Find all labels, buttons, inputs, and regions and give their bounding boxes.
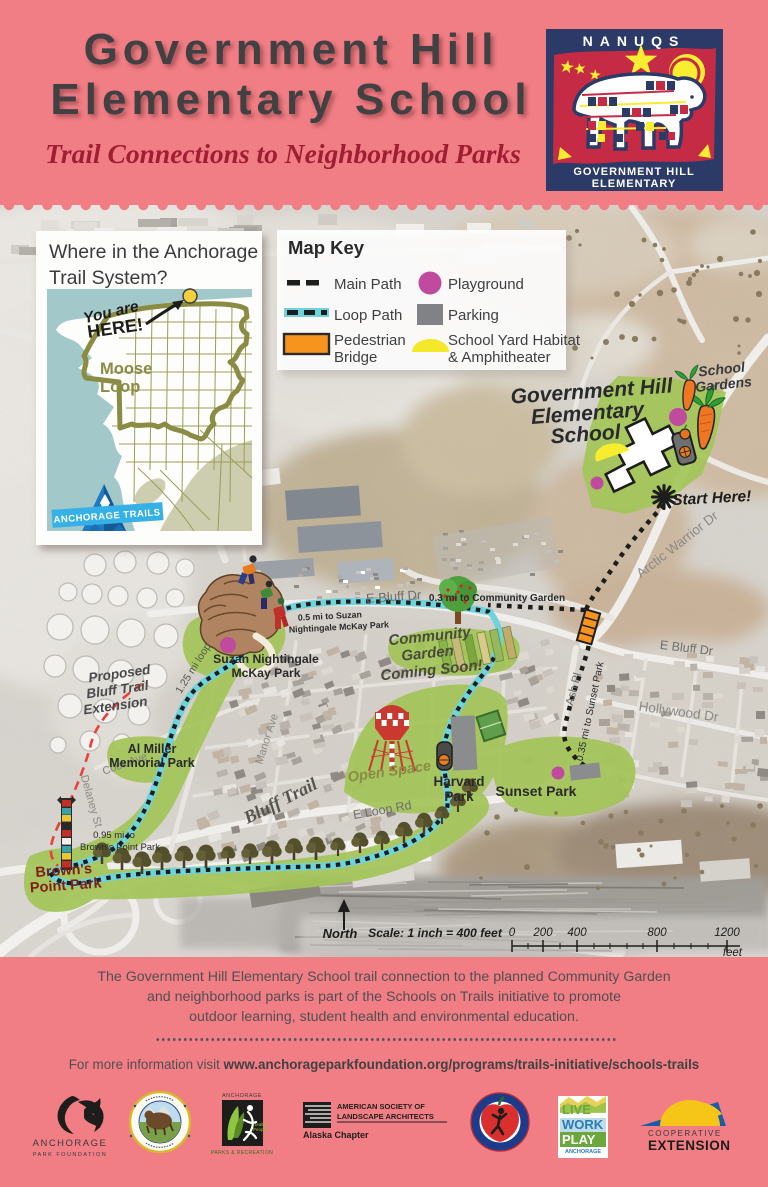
svg-text:Loop: Loop (100, 378, 140, 396)
svg-text:PLAY: PLAY (562, 1132, 596, 1147)
svg-text:800: 800 (647, 927, 667, 939)
svg-text:Suzan Nightingale: Suzan Nightingale (213, 652, 319, 666)
svg-text:Alaska Chapter: Alaska Chapter (303, 1130, 369, 1140)
svg-text:Sunset Park: Sunset Park (496, 783, 577, 799)
svg-text:EXTENSION: EXTENSION (648, 1138, 731, 1153)
svg-text:Moose: Moose (100, 360, 152, 378)
svg-text:0: 0 (509, 927, 516, 939)
svg-text:Park: Park (444, 789, 474, 804)
svg-text:LIVE: LIVE (562, 1102, 591, 1117)
svg-text:Loop Path: Loop Path (334, 307, 402, 324)
svg-text:McKay Park: McKay Park (231, 666, 300, 680)
svg-text:400: 400 (567, 927, 587, 939)
svg-text:Pedestrian: Pedestrian (334, 332, 406, 349)
svg-text:1200: 1200 (714, 927, 740, 939)
svg-text:PARKS & RECREATION: PARKS & RECREATION (211, 1150, 273, 1156)
svg-text:Scale: 1 inch = 400 feet: Scale: 1 inch = 400 feet (368, 926, 503, 940)
svg-text:Brown's Point Park: Brown's Point Park (80, 842, 160, 853)
svg-text:Parking: Parking (448, 307, 499, 324)
svg-text:LANDSCAPE ARCHITECTS: LANDSCAPE ARCHITECTS (337, 1112, 434, 1121)
svg-text:ANCHORAGE: ANCHORAGE (222, 1093, 262, 1099)
svg-text:Playground: Playground (448, 276, 524, 293)
svg-text:Main Path: Main Path (334, 276, 402, 293)
svg-text:& Amphitheater: & Amphitheater (448, 349, 551, 366)
svg-text:Bridge: Bridge (334, 349, 377, 366)
svg-text:WORK: WORK (562, 1117, 604, 1132)
svg-text:GOVERNMENT HILL: GOVERNMENT HILL (573, 166, 694, 178)
svg-text:Memorial Park: Memorial Park (109, 756, 195, 770)
svg-text:0.3 mi to Community Garden: 0.3 mi to Community Garden (429, 593, 565, 604)
svg-text:COOPERATIVE: COOPERATIVE (648, 1129, 722, 1138)
svg-text:Harvard: Harvard (433, 774, 484, 789)
svg-text:North: North (323, 926, 358, 941)
svg-text:AMERICAN SOCIETY OF: AMERICAN SOCIETY OF (337, 1102, 425, 1111)
svg-text:Trail System?: Trail System? (49, 267, 168, 289)
svg-text:Map Key: Map Key (288, 237, 365, 258)
svg-text:Al Miller: Al Miller (128, 742, 177, 756)
svg-text:School Yard Habitat: School Yard Habitat (448, 332, 581, 349)
svg-text:ANCHORAGE: ANCHORAGE (33, 1138, 108, 1149)
svg-text:ANCHORAGE: ANCHORAGE (565, 1149, 601, 1155)
svg-text:0.95 mi to: 0.95 mi to (93, 830, 135, 841)
svg-text:Where in the Anchorage: Where in the Anchorage (49, 241, 258, 263)
svg-text:feet: feet (723, 947, 743, 957)
svg-text:PARK FOUNDATION: PARK FOUNDATION (33, 1152, 108, 1158)
svg-text:ELEMENTARY: ELEMENTARY (592, 178, 677, 190)
svg-text:200: 200 (532, 927, 553, 939)
svg-text:People: People (253, 1127, 268, 1132)
svg-text:NANUQS: NANUQS (583, 33, 686, 49)
